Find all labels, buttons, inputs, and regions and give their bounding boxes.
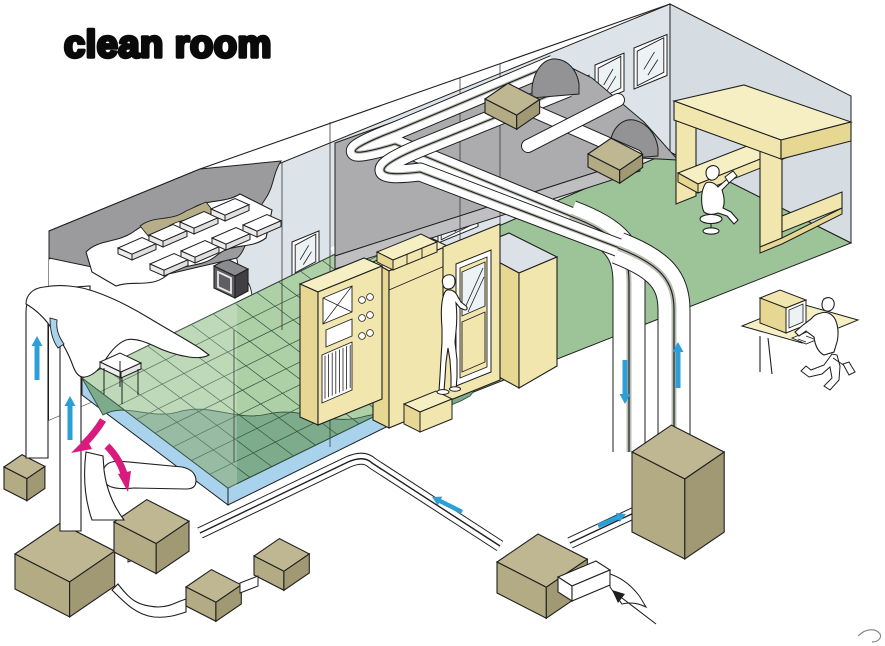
svg-text:clean room: clean room [64, 24, 272, 66]
